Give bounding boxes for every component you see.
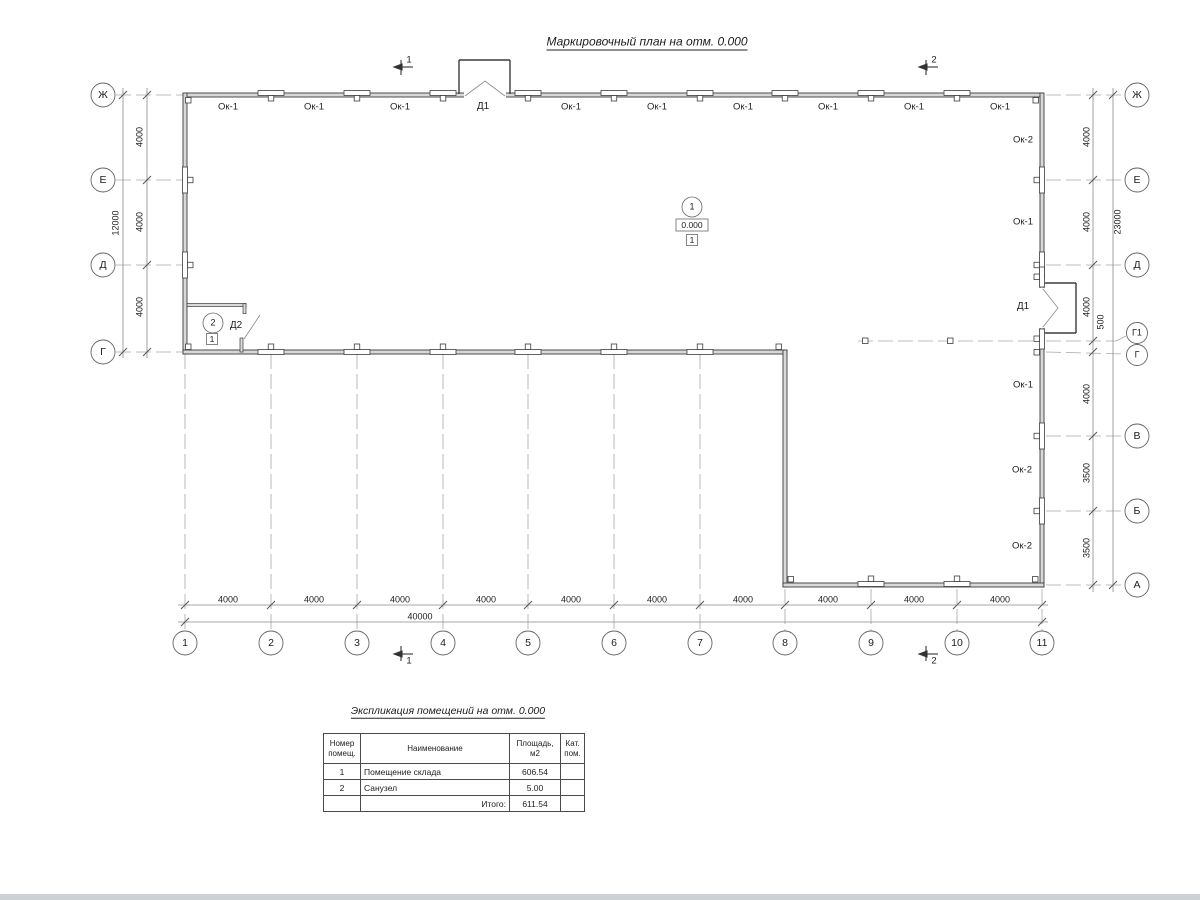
window-label: Ок-1 xyxy=(818,102,838,112)
dim-label: 4000 xyxy=(476,596,496,605)
axis-label-right: Г xyxy=(1135,351,1140,360)
axis-label-bottom: 11 xyxy=(1037,638,1048,649)
axis-label-right: Б xyxy=(1134,506,1141,517)
col-header-name: Наименование xyxy=(361,734,510,764)
axis-label-right: Е xyxy=(1133,175,1140,186)
axis-label-bottom: 2 xyxy=(268,638,274,649)
axis-label-bottom: 7 xyxy=(697,638,703,649)
window-label: Ок-1 xyxy=(218,102,238,112)
door-label: Д2 xyxy=(230,321,242,331)
axis-label-right: Ж xyxy=(1132,90,1142,101)
building-walls xyxy=(183,93,1044,587)
table-header-row: Номер помещ. Наименование Площадь, м2 Ка… xyxy=(324,734,585,764)
dim-label: 4000 xyxy=(136,127,145,147)
cell-empty xyxy=(561,796,585,812)
cell-room-cat xyxy=(561,780,585,796)
dim-label: 4000 xyxy=(990,596,1010,605)
cut-label: 2 xyxy=(931,55,936,65)
window-label: Ок-1 xyxy=(904,102,924,112)
dim-label: 4000 xyxy=(733,596,753,605)
elevation-mark: 0.000 xyxy=(681,221,702,230)
room-number: 2 xyxy=(210,319,215,328)
axis-label-left: Ж xyxy=(98,90,108,101)
dim-label: 4000 xyxy=(561,596,581,605)
cell-room-area: 5.00 xyxy=(510,780,561,796)
axis-label-left: Д xyxy=(99,260,106,271)
window-label: Ок-1 xyxy=(390,102,410,112)
dim-label: 4000 xyxy=(1083,297,1092,317)
floor-plan-page: Маркировочный план на отм. 0.000 Ж Е Д Г… xyxy=(0,0,1200,900)
window-label: Ок-1 xyxy=(990,102,1010,112)
room-number: 1 xyxy=(689,203,694,212)
axis-label-bottom: 3 xyxy=(354,638,360,649)
cell-room-name: Помещение склада xyxy=(361,764,510,780)
floor-type-mark: 1 xyxy=(210,335,215,344)
cell-room-name: Санузел xyxy=(361,780,510,796)
cell-empty xyxy=(324,796,361,812)
dim-label: 4000 xyxy=(1083,127,1092,147)
window-label: Ок-1 xyxy=(1013,217,1033,227)
cut-label: 1 xyxy=(406,55,411,65)
dim-label: 4000 xyxy=(818,596,838,605)
dimension-lines xyxy=(123,88,1113,622)
axis-label-right: Г1 xyxy=(1132,329,1142,338)
window-label: Ок-1 xyxy=(647,102,667,112)
cut-label: 2 xyxy=(931,656,936,666)
axis-label-left: Е xyxy=(99,175,106,186)
wall-column-marks xyxy=(183,91,1045,587)
dim-label: 4000 xyxy=(304,596,324,605)
cell-room-area: 606.54 xyxy=(510,764,561,780)
axis-label-right: В xyxy=(1133,431,1140,442)
dim-label: 3500 xyxy=(1083,538,1092,558)
section-cut-marks xyxy=(394,60,938,661)
dim-label-total: 23000 xyxy=(1114,209,1123,234)
table-title: Экспликация помещений на отм. 0.000 xyxy=(351,706,545,719)
dimension-ticks xyxy=(119,91,1117,626)
col-header-area: Площадь, м2 xyxy=(510,734,561,764)
cell-total-label: Итого: xyxy=(361,796,510,812)
dim-label: 3500 xyxy=(1083,463,1092,483)
room-marker-frames xyxy=(203,197,708,345)
window-label: Ок-1 xyxy=(1013,380,1033,390)
axis-label-bottom: 10 xyxy=(951,638,963,649)
dim-label: 4000 xyxy=(647,596,667,605)
col-header-cat: Кат. пом. xyxy=(561,734,585,764)
cell-room-cat xyxy=(561,764,585,780)
dim-label: 4000 xyxy=(1083,212,1092,232)
dim-label: 500 xyxy=(1097,314,1106,329)
cell-room-number: 2 xyxy=(324,780,361,796)
window-label: Ок-2 xyxy=(1012,541,1032,551)
cell-room-number: 1 xyxy=(324,764,361,780)
axis-label-right: Д xyxy=(1133,260,1140,271)
window-bottom-edge xyxy=(0,894,1200,900)
table-row: 1 Помещение склада 606.54 xyxy=(324,764,585,780)
dim-label-total: 40000 xyxy=(407,613,432,622)
axis-label-bottom: 4 xyxy=(440,638,446,649)
page-title: Маркировочный план на отм. 0.000 xyxy=(546,36,747,51)
axis-label-bottom: 5 xyxy=(525,638,531,649)
axis-label-right: А xyxy=(1133,580,1140,591)
floor-type-mark: 1 xyxy=(690,236,695,245)
window-label: Ок-2 xyxy=(1012,465,1032,475)
dim-label: 4000 xyxy=(136,212,145,232)
dim-label: 4000 xyxy=(218,596,238,605)
cell-total-value: 611.54 xyxy=(510,796,561,812)
window-label: Ок-1 xyxy=(561,102,581,112)
window-label: Ок-2 xyxy=(1013,135,1033,145)
table-total-row: Итого: 611.54 xyxy=(324,796,585,812)
dim-label: 4000 xyxy=(1083,384,1092,404)
axis-label-left: Г xyxy=(100,347,106,358)
window-label: Ок-1 xyxy=(733,102,753,112)
window-label: Ок-1 xyxy=(304,102,324,112)
dim-label: 4000 xyxy=(390,596,410,605)
axis-label-bottom: 6 xyxy=(611,638,617,649)
dim-label: 4000 xyxy=(136,297,145,317)
axis-circles xyxy=(91,83,1149,655)
axis-label-bottom: 1 xyxy=(182,638,188,649)
door-label: Д1 xyxy=(1017,302,1029,312)
axis-grid-lines xyxy=(116,95,1126,631)
door-label: Д1 xyxy=(477,102,489,112)
table-row: 2 Санузел 5.00 xyxy=(324,780,585,796)
dim-label-total: 12000 xyxy=(112,210,121,235)
col-header-number: Номер помещ. xyxy=(324,734,361,764)
dim-label: 4000 xyxy=(904,596,924,605)
axis-label-bottom: 8 xyxy=(782,638,788,649)
axis-label-bottom: 9 xyxy=(868,638,874,649)
cut-label: 1 xyxy=(406,656,411,666)
explication-table: Номер помещ. Наименование Площадь, м2 Ка… xyxy=(323,733,585,812)
